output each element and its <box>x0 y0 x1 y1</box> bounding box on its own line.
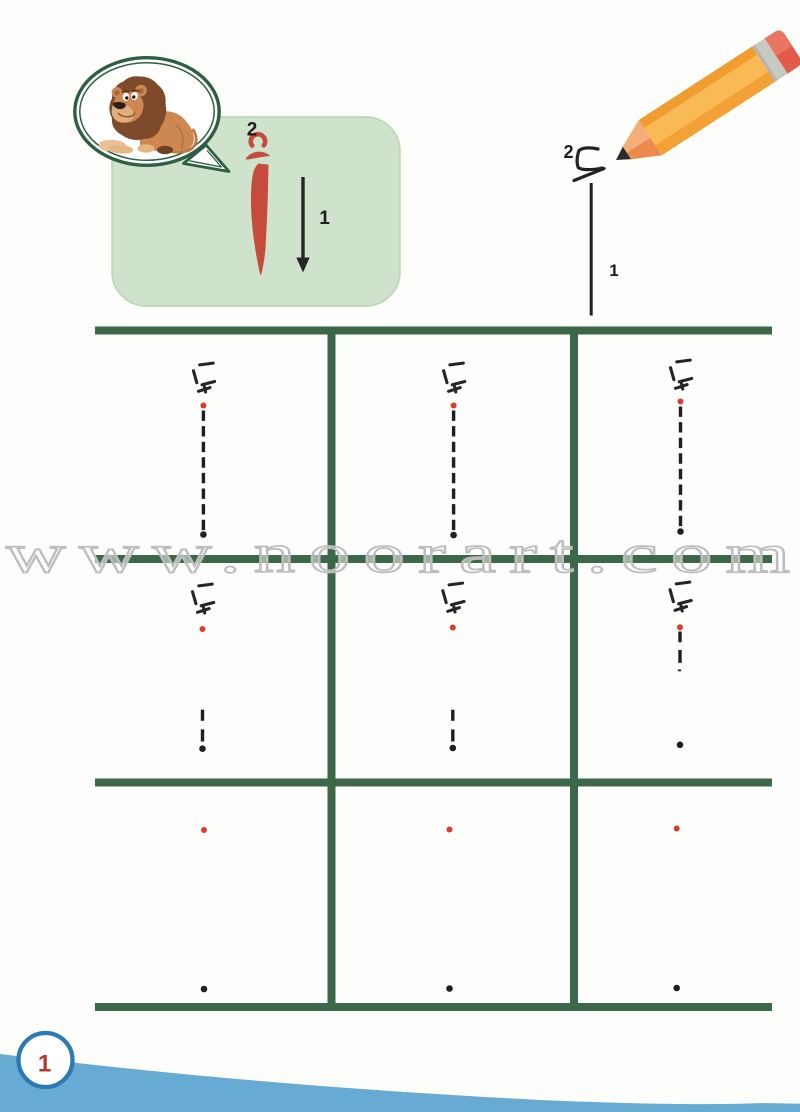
svg-text:2: 2 <box>247 120 258 141</box>
svg-text:2: 2 <box>563 142 573 162</box>
svg-text:1: 1 <box>38 1051 51 1078</box>
svg-text:1: 1 <box>319 208 330 229</box>
svg-text:1: 1 <box>609 261 618 280</box>
